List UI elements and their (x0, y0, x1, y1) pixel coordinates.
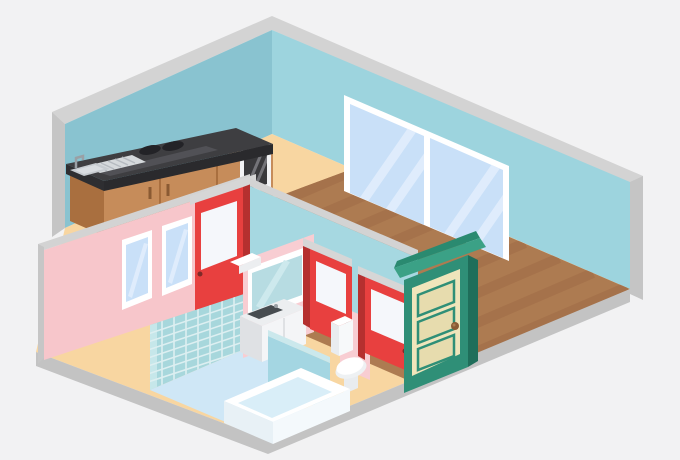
red-door-3-edge (358, 274, 365, 360)
red-door-1-knob (198, 272, 203, 277)
wall-left-cut-edge (52, 112, 65, 237)
apartment-cutaway-illustration (0, 0, 680, 460)
scene-svg (0, 0, 680, 460)
green-door-knob-highlight (453, 324, 456, 327)
green-door-frame-side (468, 255, 478, 367)
pink-wall-cut-edge (38, 244, 44, 364)
toilet-tank-front (331, 322, 339, 356)
vanity-faucet (274, 304, 278, 308)
wall-right-cut-edge (630, 176, 643, 300)
toilet-tank-side (339, 320, 353, 356)
red-door-2-edge (303, 246, 310, 328)
